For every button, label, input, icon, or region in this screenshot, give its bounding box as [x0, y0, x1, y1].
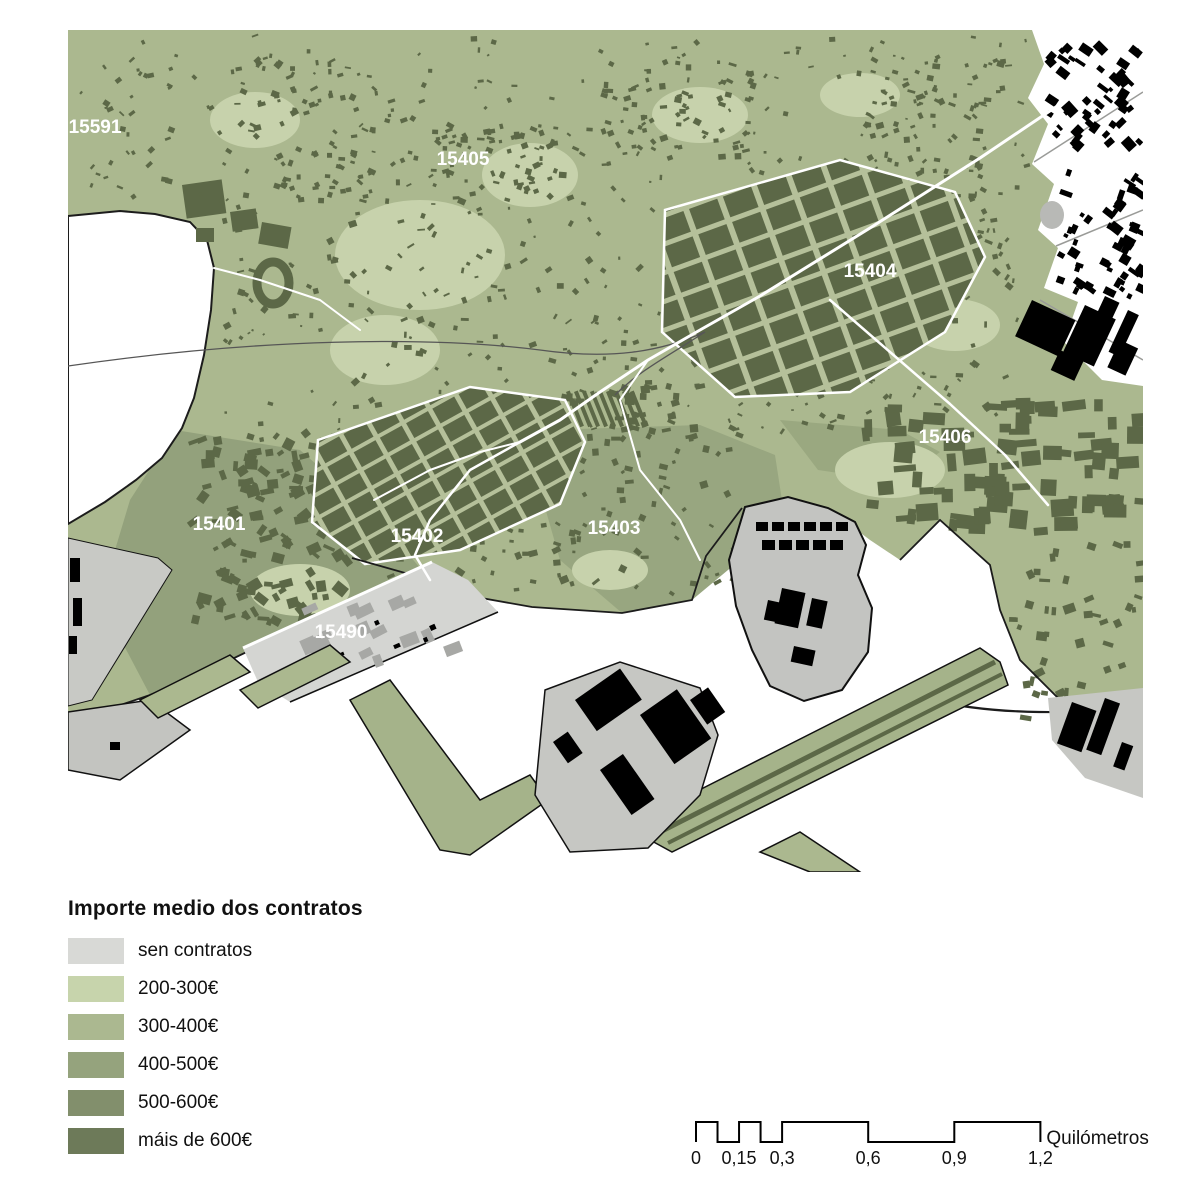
- legend-swatch: [68, 938, 124, 964]
- scale-bar-tick: 1,2: [1028, 1148, 1053, 1168]
- scale-bar-tick: 0: [691, 1148, 701, 1168]
- legend-label: máis de 600€: [138, 1130, 252, 1152]
- zone-label-15401: 15401: [193, 514, 246, 535]
- legend-row: 400-500€: [68, 1051, 363, 1078]
- legend-label: 300-400€: [138, 1016, 218, 1038]
- legend-row: sen contratos: [68, 937, 363, 964]
- legend-row: 500-600€: [68, 1089, 363, 1116]
- zone-label-15490: 15490: [315, 622, 368, 643]
- scale-bar-tick: 0,6: [856, 1148, 881, 1168]
- scale-bar: 00,150,30,60,91,2Quilómetros: [688, 1110, 1188, 1181]
- legend-row: 300-400€: [68, 1013, 363, 1040]
- scale-bar-tick: 0,9: [942, 1148, 967, 1168]
- legend-items: sen contratos200-300€300-400€400-500€500…: [68, 937, 363, 1154]
- legend: Importe medio dos contratos sen contrato…: [68, 897, 363, 1165]
- scale-bar-line: [696, 1122, 1040, 1142]
- zone-label-15402: 15402: [391, 526, 444, 547]
- scale-bar-graphic: 00,150,30,60,91,2Quilómetros: [688, 1110, 1188, 1176]
- legend-title: Importe medio dos contratos: [68, 897, 363, 921]
- zone-label-15405: 15405: [437, 149, 490, 170]
- legend-swatch: [68, 1128, 124, 1154]
- legend-swatch: [68, 1014, 124, 1040]
- legend-row: 200-300€: [68, 975, 363, 1002]
- zone-label-15403: 15403: [588, 518, 641, 539]
- scale-bar-tick: 0,15: [722, 1148, 757, 1168]
- legend-label: 500-600€: [138, 1092, 218, 1114]
- legend-swatch: [68, 976, 124, 1002]
- page: 1559115405154041540615401154021540315490…: [0, 0, 1200, 1200]
- zone-label-15404: 15404: [844, 261, 897, 282]
- scale-bar-unit-label: Quilómetros: [1046, 1128, 1148, 1149]
- zone-label-15591: 15591: [69, 117, 122, 138]
- legend-label: 200-300€: [138, 978, 218, 1000]
- legend-label: 400-500€: [138, 1054, 218, 1076]
- scale-bar-tick: 0,3: [770, 1148, 795, 1168]
- legend-swatch: [68, 1052, 124, 1078]
- legend-row: máis de 600€: [68, 1127, 363, 1154]
- legend-swatch: [68, 1090, 124, 1116]
- zone-label-15406: 15406: [919, 427, 972, 448]
- neighbour-gray-blob: [1040, 201, 1064, 229]
- legend-label: sen contratos: [138, 940, 252, 962]
